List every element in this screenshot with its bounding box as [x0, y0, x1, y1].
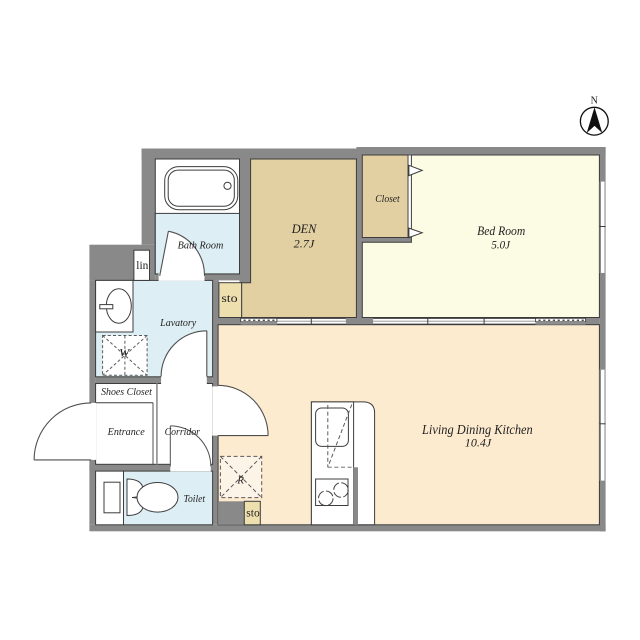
svg-text:DEN: DEN — [291, 222, 317, 236]
svg-text:2.7J: 2.7J — [294, 239, 316, 251]
svg-text:Lavatory: Lavatory — [159, 318, 196, 329]
svg-text:W: W — [119, 346, 130, 360]
svg-text:sto: sto — [246, 508, 260, 520]
svg-text:5.0J: 5.0J — [491, 239, 510, 251]
svg-text:Shoes Closet: Shoes Closet — [101, 387, 153, 398]
svg-text:10.4J: 10.4J — [465, 435, 492, 449]
svg-text:Toilet: Toilet — [184, 494, 206, 505]
svg-text:lin: lin — [136, 260, 148, 272]
svg-text:Corridor: Corridor — [165, 427, 201, 438]
svg-text:Bed Room: Bed Room — [477, 224, 525, 238]
svg-text:R: R — [236, 474, 244, 486]
svg-text:N: N — [591, 96, 598, 107]
svg-text:sto: sto — [221, 291, 237, 305]
svg-text:Closet: Closet — [375, 194, 400, 205]
svg-text:Bath Room: Bath Room — [178, 241, 224, 252]
svg-text:Entrance: Entrance — [107, 427, 145, 438]
